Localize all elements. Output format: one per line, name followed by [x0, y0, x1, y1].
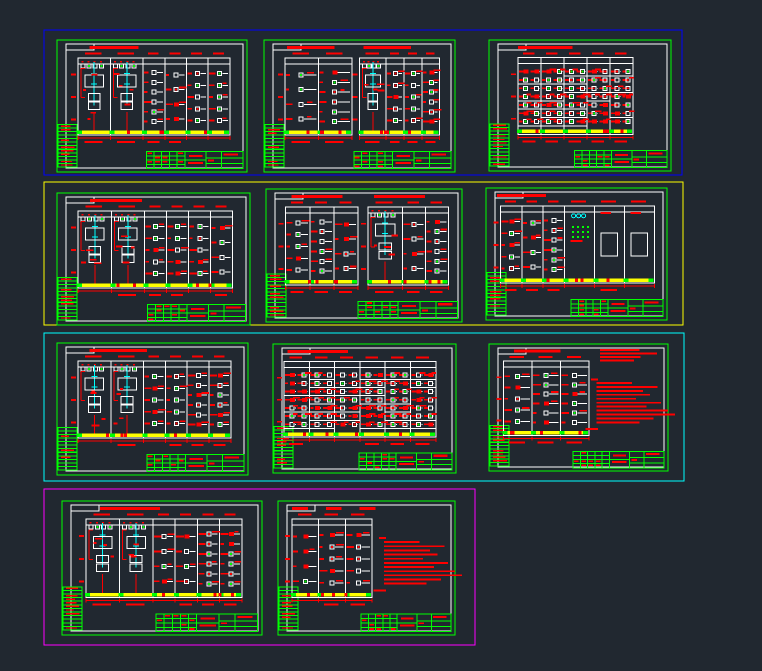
group-cyan — [44, 333, 684, 481]
drawing-sheet-r1s2[interactable] — [264, 40, 455, 172]
drawing-sheet-r3s2[interactable] — [273, 344, 456, 473]
drawing-sheet-r1s3[interactable] — [489, 40, 671, 171]
drawing-sheet-r2s1[interactable] — [57, 193, 250, 325]
drawing-sheet-r3s3[interactable] — [489, 344, 675, 471]
drawing-sheet-r1s1[interactable] — [57, 40, 247, 172]
model-space-canvas[interactable] — [0, 0, 762, 671]
group-blue — [44, 30, 682, 175]
drawing-sheet-r4s2[interactable] — [278, 501, 462, 635]
drawing-sheet-r2s3[interactable] — [486, 188, 667, 320]
drawing-sheet-r4s1[interactable] — [62, 501, 262, 635]
group-magenta — [44, 489, 475, 645]
drawing-sheet-r3s1[interactable] — [57, 343, 248, 475]
drawing-sheet-r2s2[interactable] — [266, 189, 462, 322]
cad-canvas[interactable] — [0, 0, 762, 671]
group-yellow — [44, 182, 683, 325]
